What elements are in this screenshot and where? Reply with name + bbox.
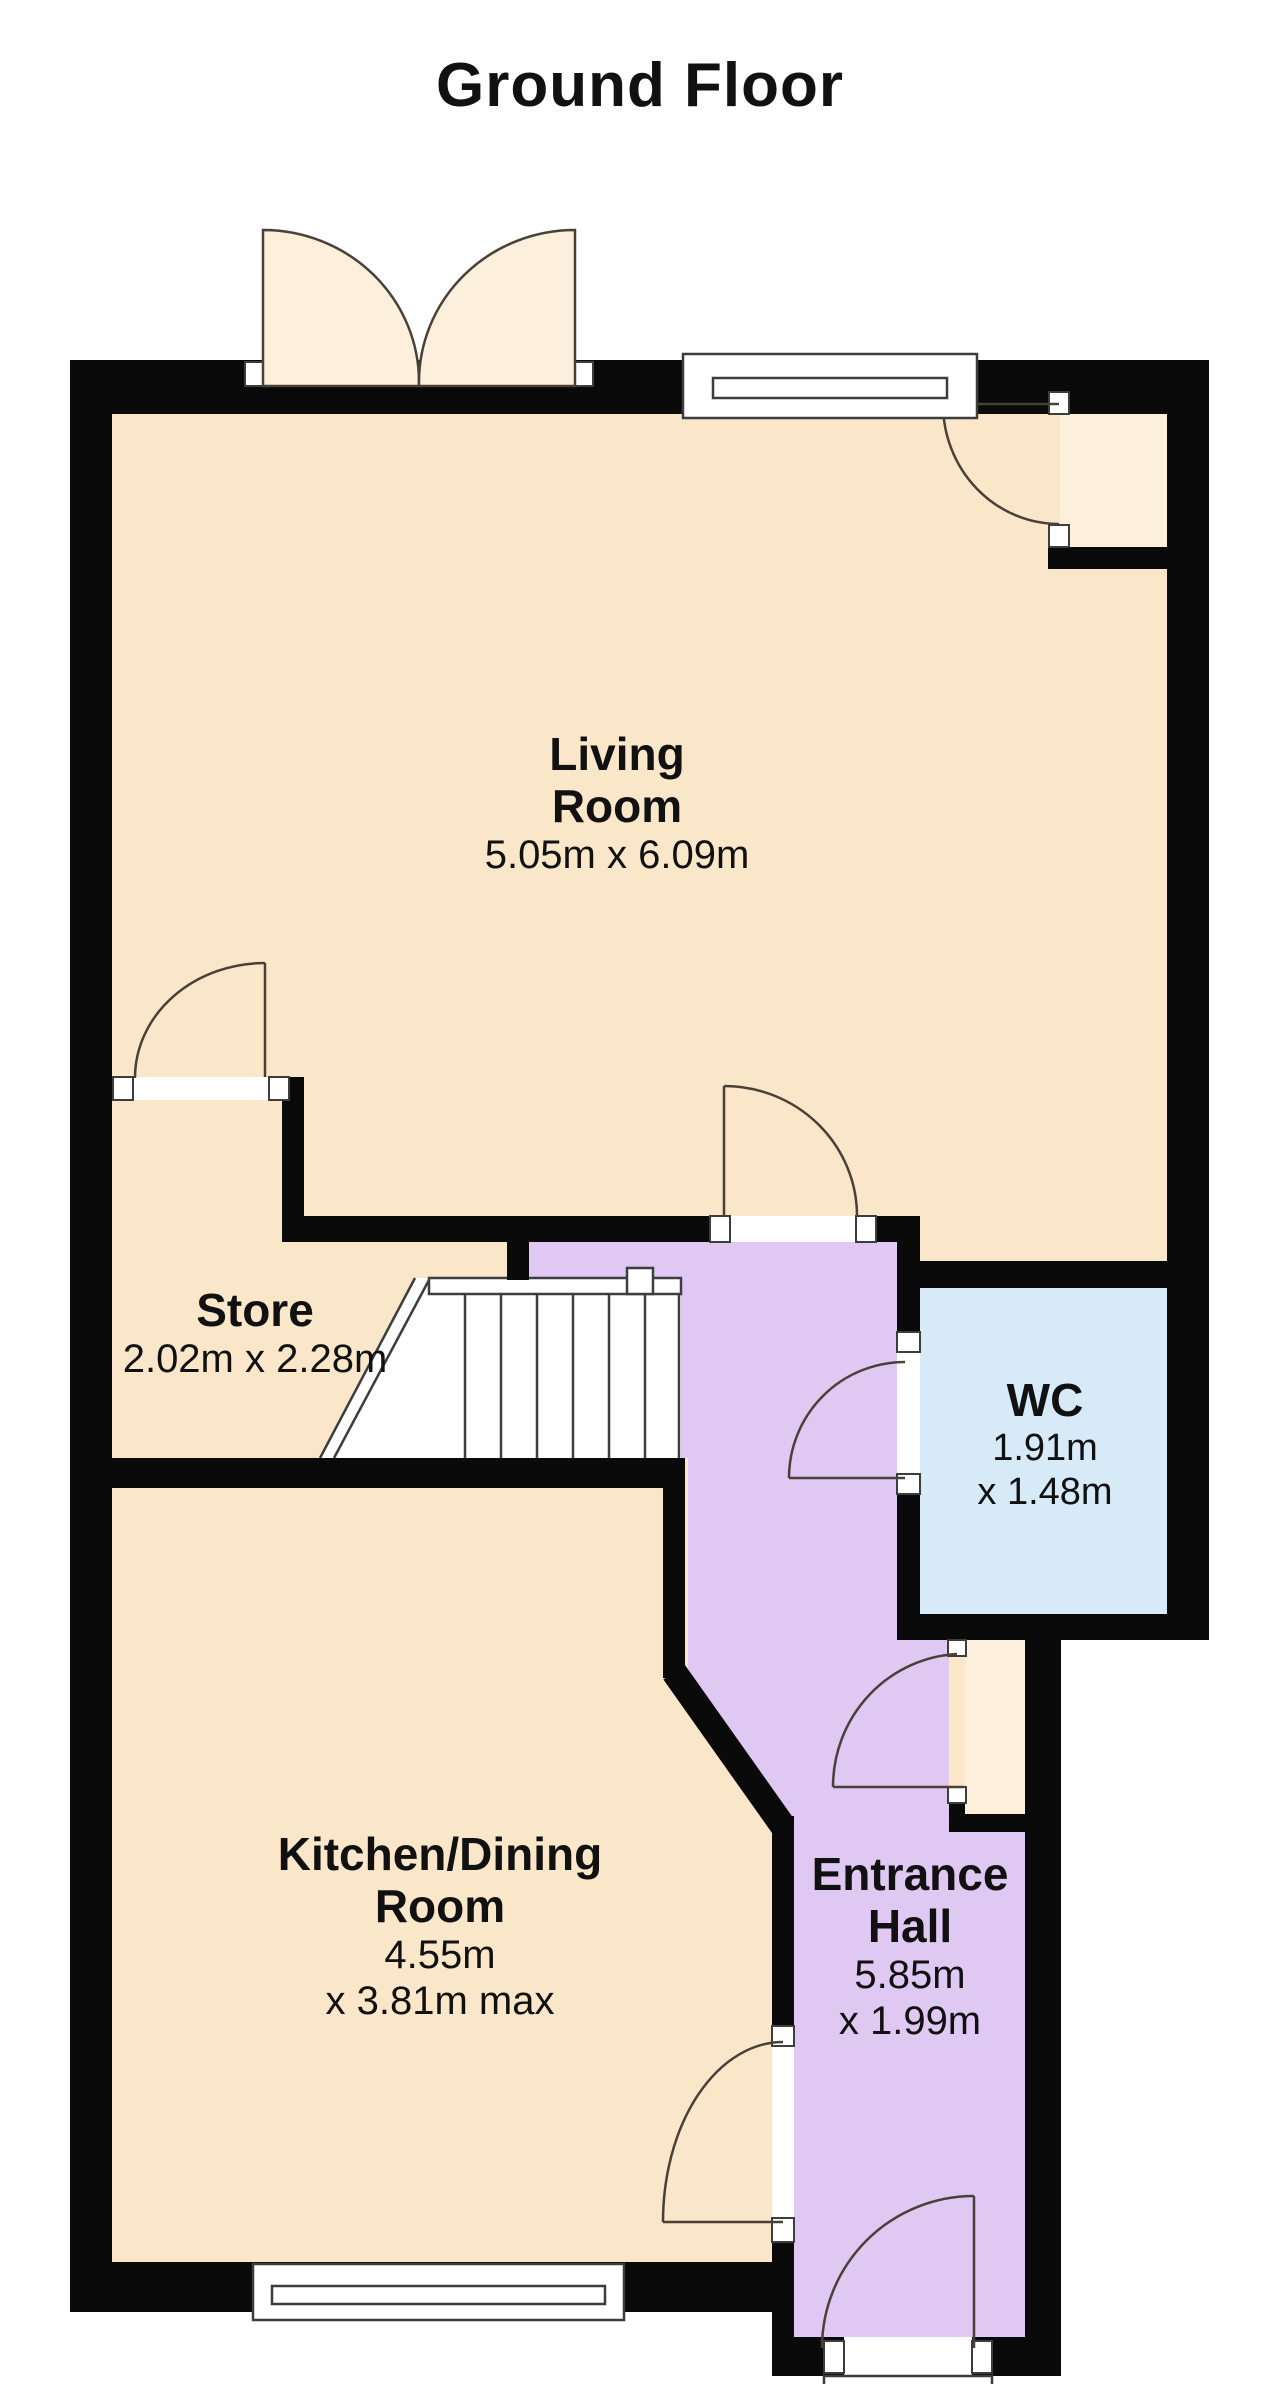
room-name: Kitchen/Dining <box>190 1828 690 1880</box>
window-top-glass <box>713 378 947 398</box>
top-right-nook-floor <box>1060 414 1167 549</box>
room-dimensions: x 1.48m <box>923 1470 1167 1514</box>
room-name: Entrance <box>780 1848 1040 1900</box>
label-entrance-hall: Entrance Hall 5.85m x 1.99m <box>780 1848 1040 2044</box>
wall-closet-bottom <box>949 1814 1027 1832</box>
room-name: Room <box>190 1880 690 1932</box>
floorplan-page: Ground Floor <box>0 0 1280 2384</box>
label-living-room: Living Room 5.05m x 6.09m <box>397 728 837 879</box>
jamb <box>824 2341 844 2373</box>
room-dimensions: x 1.99m <box>780 1998 1040 2044</box>
room-dimensions: 5.85m <box>780 1952 1040 1998</box>
room-dimensions: x 3.81m max <box>190 1978 690 2024</box>
label-wc: WC 1.91m x 1.48m <box>923 1374 1167 1514</box>
wall-hall-top-stub <box>507 1242 529 1280</box>
jamb <box>245 362 263 386</box>
french-doors <box>263 230 575 386</box>
room-dimensions: 5.05m x 6.09m <box>397 832 837 879</box>
room-name: Room <box>397 780 837 832</box>
jamb <box>710 1216 730 1242</box>
wall-nook-bottom <box>1048 547 1174 569</box>
room-name: Store <box>85 1284 425 1336</box>
closet-floor <box>965 1640 1025 1814</box>
front-door-threshold <box>824 2376 992 2384</box>
french-door-right-leaf <box>419 230 575 386</box>
room-dimensions: 1.91m <box>923 1426 1167 1470</box>
jamb <box>113 1077 133 1100</box>
room-dimensions: 2.02m x 2.28m <box>85 1336 425 1383</box>
jamb <box>897 1332 920 1352</box>
stairs-newel-post <box>627 1268 653 1294</box>
room-name: WC <box>923 1374 1167 1426</box>
wall-top <box>70 360 1209 414</box>
jamb <box>948 1787 966 1803</box>
wall-under-stairs <box>112 1458 685 1488</box>
jamb <box>575 362 593 386</box>
wall-kitchen-side-upper <box>663 1488 685 1678</box>
room-name: Living <box>397 728 837 780</box>
floorplan-drawing <box>0 0 1280 2384</box>
room-dimensions: 4.55m <box>190 1932 690 1978</box>
room-name: Hall <box>780 1900 1040 1952</box>
jamb <box>269 1077 289 1100</box>
jamb <box>1049 525 1069 547</box>
wall-living-wc <box>897 1261 1209 1288</box>
label-kitchen-dining: Kitchen/Dining Room 4.55m x 3.81m max <box>190 1828 690 2024</box>
window-bottom-glass <box>272 2286 605 2304</box>
label-store: Store 2.02m x 2.28m <box>85 1284 425 1383</box>
french-door-left-leaf <box>263 230 419 386</box>
wall-wc-bottom <box>897 1614 1209 1640</box>
jamb <box>856 1216 876 1242</box>
wall-store-side <box>282 1100 304 1220</box>
